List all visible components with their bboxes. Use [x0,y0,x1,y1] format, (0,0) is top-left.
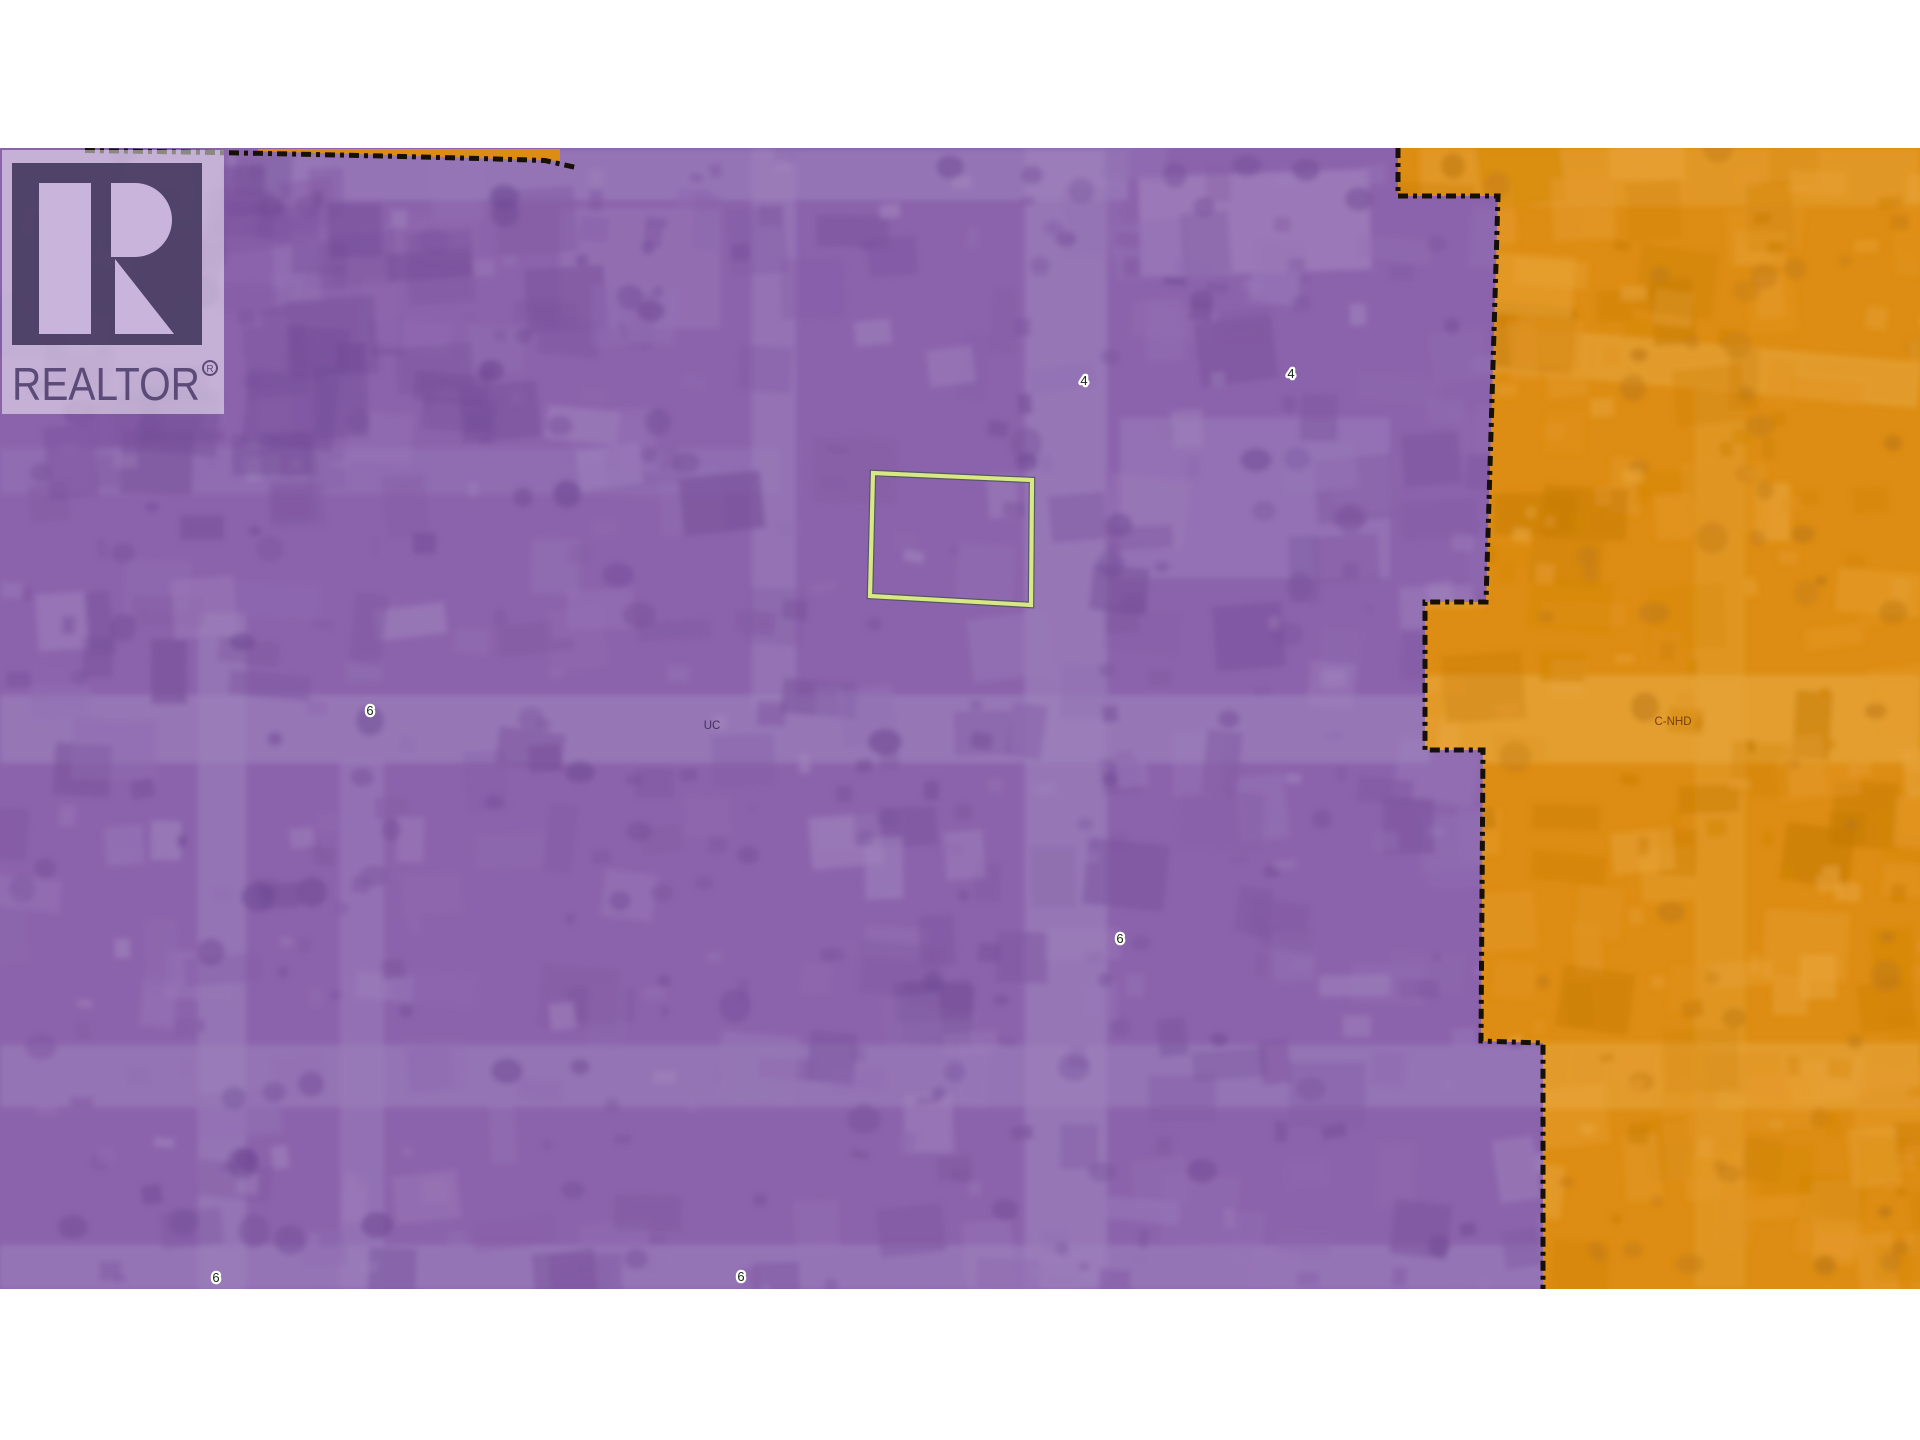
svg-text:REALTOR: REALTOR [12,358,200,410]
svg-text:6: 6 [1116,931,1123,946]
svg-text:4: 4 [1080,373,1087,388]
svg-text:6: 6 [212,1270,219,1285]
svg-text:6: 6 [737,1269,744,1284]
svg-text:6: 6 [366,703,373,718]
svg-text:R: R [206,364,213,375]
svg-text:UC: UC [704,720,721,732]
svg-text:4: 4 [1287,366,1294,381]
svg-text:C-NHD: C-NHD [1654,716,1691,728]
